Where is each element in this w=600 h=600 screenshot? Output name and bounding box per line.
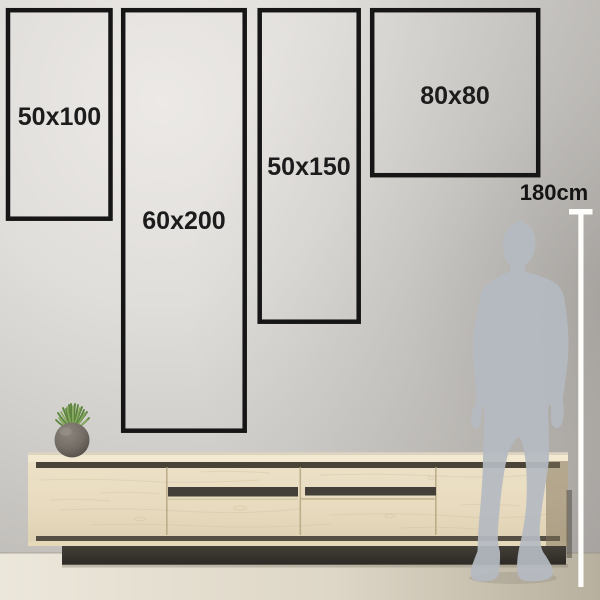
svg-text:50x100: 50x100	[18, 103, 101, 131]
svg-text:80x80: 80x80	[420, 82, 490, 110]
svg-text:50x150: 50x150	[267, 153, 350, 181]
svg-text:60x200: 60x200	[142, 207, 225, 235]
svg-text:180cm: 180cm	[520, 180, 589, 205]
